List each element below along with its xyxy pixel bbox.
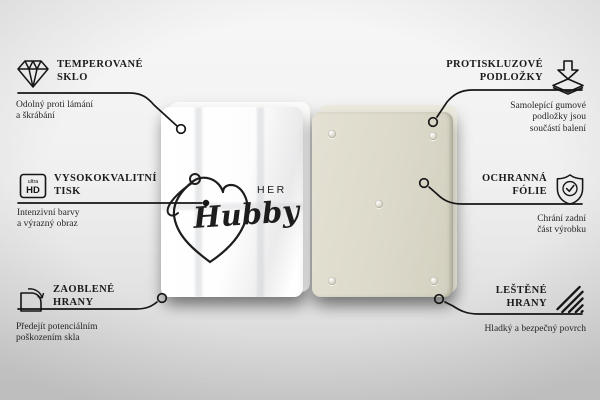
rubber-pad <box>328 130 336 138</box>
shield-check-icon <box>554 173 586 206</box>
callout-title: PROTISKLUZOVÉ PODLOŽKY <box>446 59 543 85</box>
rounded-corner-icon <box>16 284 46 313</box>
hd-label: HD <box>26 185 40 196</box>
callout-polished-edges: LEŠTĚNÉ HRANY Hladký a bezpečný povrch <box>416 285 586 335</box>
callout-description: Předejít potenciálním poškozením skla <box>16 322 166 345</box>
callout-title: ZAOBLENÉ HRANY <box>53 284 115 310</box>
callout-rounded-edges: ZAOBLENÉ HRANY Předejít potenciálním poš… <box>16 284 166 345</box>
callout-title: OCHRANNÁ FÓLIE <box>482 173 547 199</box>
callout-anti-slip-pads: PROTISKLUZOVÉ PODLOŽKY Samolepící gumové… <box>416 59 586 135</box>
design-text-hubby: Hubby <box>191 194 302 236</box>
callout-title: TEMPEROVANÉ SKLO <box>57 59 143 85</box>
callout-high-quality-print: ultra HD VYSOKOKVALITNÍ TISK Intenzivní … <box>19 173 169 231</box>
product-infographic: HER Hubby <box>0 0 600 400</box>
callout-description: Hladký a bezpečný povrch <box>416 324 586 335</box>
her-hubby-print-design: HER Hubby <box>161 107 303 297</box>
anti-slip-pad-icon <box>550 59 586 95</box>
callout-description: Samolepící gumové podložky jsou součástí… <box>416 101 586 135</box>
callout-title: VYSOKOKVALITNÍ TISK <box>54 173 157 199</box>
callout-tempered-glass: TEMPEROVANÉ SKLO Odolný proti lámání a š… <box>16 59 166 123</box>
rubber-pad <box>328 277 336 285</box>
diamond-icon <box>16 59 50 89</box>
callout-description: Odolný proti lámání a škrábání <box>16 100 166 123</box>
callout-description: Chrání zadní část výrobku <box>416 214 586 237</box>
swash-line <box>168 183 192 215</box>
rubber-pad <box>430 277 438 285</box>
ultra-hd-icon: ultra HD <box>19 173 47 199</box>
polished-edges-icon <box>554 285 586 314</box>
callout-protective-film: OCHRANNÁ FÓLIE Chrání zadní část výrobku <box>416 173 586 237</box>
callout-description: Intenzivní barvy a výrazný obraz <box>17 208 169 231</box>
rubber-pad <box>375 200 383 208</box>
callout-title: LEŠTĚNÉ HRANY <box>496 285 547 311</box>
glass-board-front: HER Hubby <box>161 107 303 297</box>
